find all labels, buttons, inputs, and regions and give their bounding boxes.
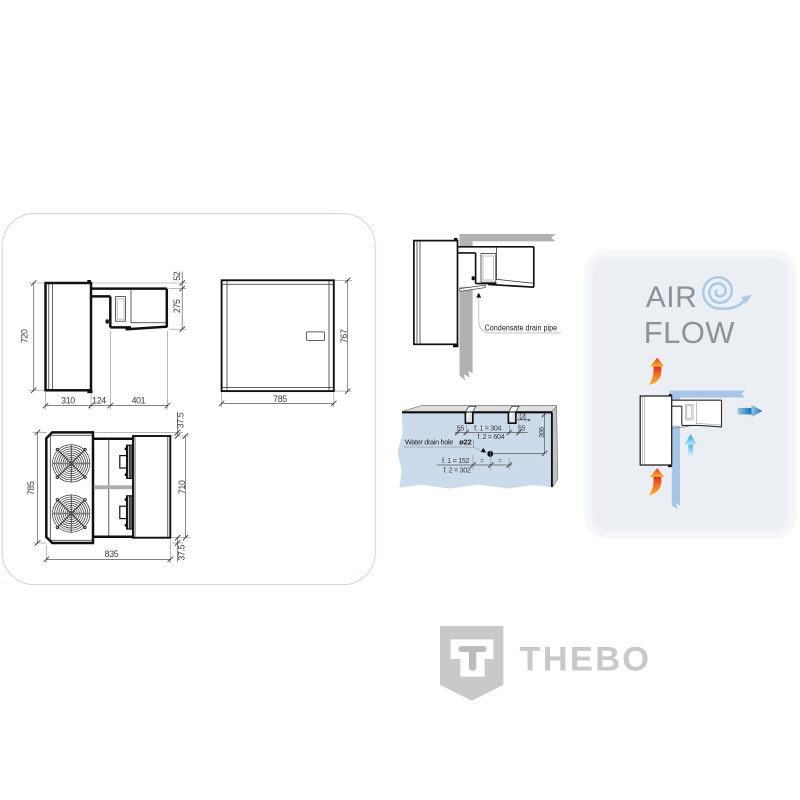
svg-text:37.5: 37.5	[176, 544, 186, 560]
svg-text:f. 2 = 604: f. 2 = 604	[477, 434, 504, 441]
svg-text:55: 55	[518, 426, 526, 433]
svg-text:275: 275	[172, 299, 182, 313]
svg-text:AIR: AIR	[646, 281, 698, 314]
svg-text:THEBO: THEBO	[520, 641, 652, 679]
svg-text:835: 835	[105, 549, 119, 559]
svg-text:767: 767	[339, 329, 349, 343]
svg-text:Condensate drain pipe: Condensate drain pipe	[485, 324, 557, 333]
svg-text:310: 310	[61, 395, 75, 405]
svg-text:306: 306	[539, 427, 546, 438]
svg-text:FLOW: FLOW	[644, 315, 735, 350]
svg-text:124: 124	[92, 395, 106, 405]
svg-text:ø22: ø22	[459, 438, 472, 447]
svg-text:52: 52	[172, 271, 182, 281]
svg-text:710: 710	[177, 480, 187, 494]
svg-text:f. 1 = 152: f. 1 = 152	[442, 458, 470, 465]
svg-text:55: 55	[457, 426, 465, 433]
svg-text:Water drain hole: Water drain hole	[405, 440, 453, 447]
svg-text:401: 401	[132, 395, 146, 405]
svg-text:37.5: 37.5	[176, 412, 186, 428]
svg-text:785: 785	[273, 394, 287, 404]
svg-text:785: 785	[26, 481, 36, 495]
svg-text:f. 2 = 302: f. 2 = 302	[443, 468, 471, 475]
svg-text:f. 1 = 304: f. 1 = 304	[474, 426, 501, 433]
svg-text:52: 52	[520, 412, 527, 420]
svg-text:720: 720	[19, 329, 29, 343]
